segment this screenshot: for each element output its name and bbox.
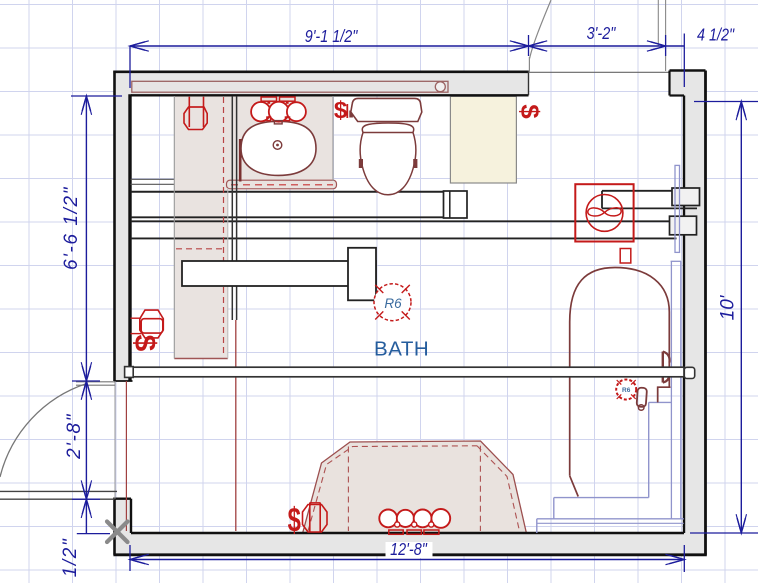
svg-text:9 1/2": 9 1/2" — [60, 538, 81, 583]
svg-text:R6: R6 — [384, 296, 402, 311]
svg-text:12'-8": 12'-8" — [390, 540, 428, 560]
svg-text:$: $ — [288, 501, 301, 539]
svg-text:10': 10' — [718, 294, 739, 320]
svg-text:3'-2": 3'-2" — [587, 24, 617, 44]
svg-text:BATH: BATH — [374, 338, 429, 361]
svg-text:4 1/2": 4 1/2" — [697, 25, 735, 45]
svg-text:9'-1 1/2": 9'-1 1/2" — [305, 27, 359, 47]
svg-text:2'-8": 2'-8" — [64, 413, 85, 460]
svg-text:$: $ — [334, 97, 348, 124]
svg-text:$: $ — [515, 104, 545, 119]
svg-text:6'-6 1/2": 6'-6 1/2" — [61, 186, 82, 270]
svg-text:R6: R6 — [622, 387, 631, 394]
